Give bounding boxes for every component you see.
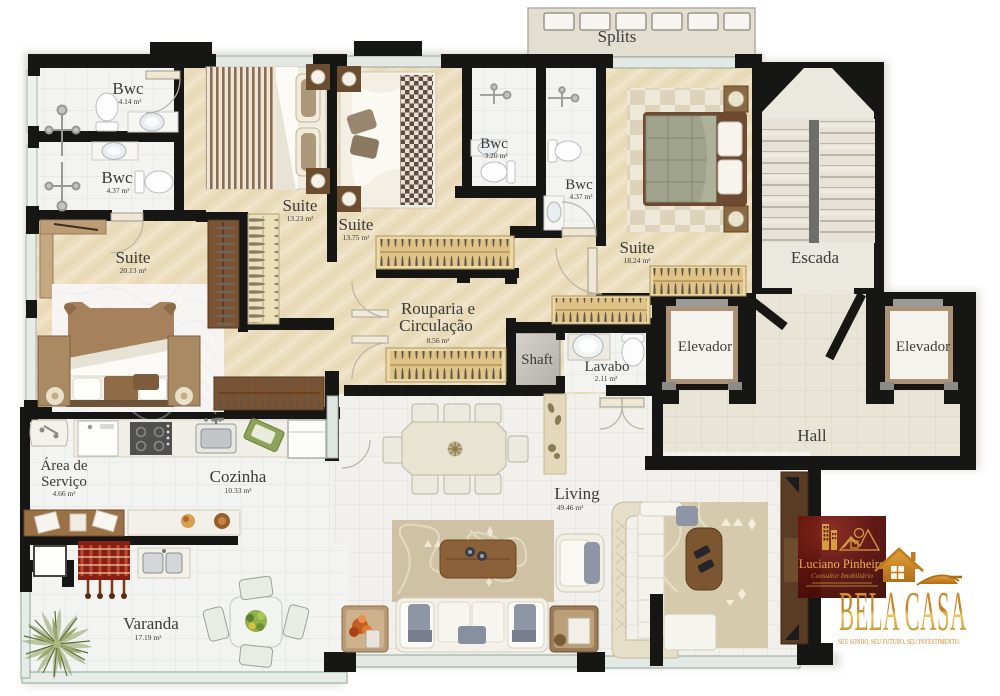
svg-text:Varanda: Varanda bbox=[123, 614, 179, 633]
svg-text:Elevador: Elevador bbox=[678, 339, 732, 355]
svg-text:13.75 m²: 13.75 m² bbox=[343, 233, 371, 242]
svg-text:SEU SONHO, SEU FUTURO, SEU INV: SEU SONHO, SEU FUTURO, SEU INVESTIMENTO. bbox=[838, 638, 960, 646]
svg-text:8.56 m²: 8.56 m² bbox=[426, 336, 450, 345]
svg-text:20.13 m²: 20.13 m² bbox=[120, 266, 148, 275]
svg-text:Consultor Imobiliário: Consultor Imobiliário bbox=[811, 572, 873, 580]
svg-text:Serviço: Serviço bbox=[41, 474, 87, 490]
svg-text:Bwc: Bwc bbox=[112, 79, 144, 98]
svg-text:4.37 m²: 4.37 m² bbox=[569, 192, 593, 201]
svg-text:2.11 m²: 2.11 m² bbox=[595, 374, 619, 383]
svg-text:Bwc: Bwc bbox=[565, 177, 593, 193]
svg-text:Shaft: Shaft bbox=[521, 352, 553, 368]
svg-text:Escada: Escada bbox=[791, 248, 840, 267]
svg-text:Lavabo: Lavabo bbox=[585, 359, 630, 375]
svg-text:4.37 m²: 4.37 m² bbox=[106, 186, 130, 195]
svg-text:BELA CASA: BELA CASA bbox=[839, 582, 967, 644]
svg-text:Hall: Hall bbox=[797, 426, 827, 445]
svg-text:Suite: Suite bbox=[339, 215, 374, 234]
svg-text:Luciano Pinheiro: Luciano Pinheiro bbox=[799, 557, 885, 571]
svg-text:Splits: Splits bbox=[598, 27, 637, 46]
svg-text:13.23 m²: 13.23 m² bbox=[287, 214, 315, 223]
svg-text:Cozinha: Cozinha bbox=[210, 467, 267, 486]
svg-text:Bwc: Bwc bbox=[101, 168, 133, 187]
svg-text:3.20 m²: 3.20 m² bbox=[484, 151, 508, 160]
svg-text:Elevador: Elevador bbox=[896, 339, 950, 355]
svg-text:10.33 m²: 10.33 m² bbox=[225, 486, 253, 495]
svg-text:Suite: Suite bbox=[283, 196, 318, 215]
svg-text:Living: Living bbox=[554, 484, 600, 503]
svg-text:18.24 m²: 18.24 m² bbox=[624, 256, 652, 265]
svg-text:4.14 m²: 4.14 m² bbox=[118, 97, 142, 106]
svg-text:Bwc: Bwc bbox=[480, 136, 508, 152]
svg-text:Suite: Suite bbox=[620, 238, 655, 257]
svg-text:17.19 m²: 17.19 m² bbox=[135, 633, 163, 642]
svg-text:Área de: Área de bbox=[40, 457, 87, 474]
svg-text:Circulação: Circulação bbox=[399, 316, 473, 335]
svg-text:49.46 m²: 49.46 m² bbox=[557, 503, 585, 512]
svg-text:4.66 m²: 4.66 m² bbox=[52, 489, 76, 498]
svg-text:Suite: Suite bbox=[116, 248, 151, 267]
